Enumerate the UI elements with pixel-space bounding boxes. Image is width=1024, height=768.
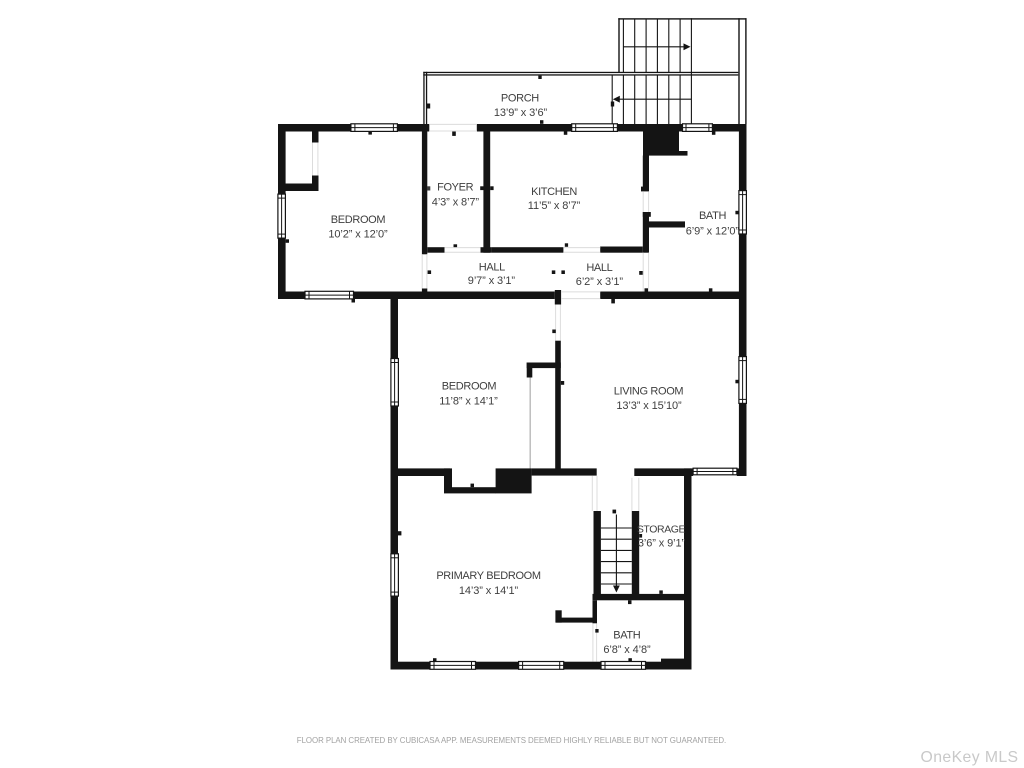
svg-text:3’6” x 9’1”: 3’6” x 9’1”: [638, 538, 686, 550]
svg-text:BATH: BATH: [613, 630, 641, 642]
svg-text:PORCH: PORCH: [501, 93, 539, 105]
svg-text:BEDROOM: BEDROOM: [331, 214, 386, 226]
svg-text:FOYER: FOYER: [437, 182, 474, 194]
svg-text:KITCHEN: KITCHEN: [531, 186, 577, 198]
svg-text:6’9” x 12’0”: 6’9” x 12’0”: [686, 226, 740, 238]
svg-text:14’3” x 14’1”: 14’3” x 14’1”: [459, 585, 519, 597]
svg-text:4’3” x 8’7”: 4’3” x 8’7”: [432, 197, 480, 209]
svg-text:13’9” x 3’6”: 13’9” x 3’6”: [494, 107, 548, 119]
svg-text:11’5” x 8’7”: 11’5” x 8’7”: [528, 200, 581, 212]
svg-text:HALL: HALL: [479, 262, 505, 274]
svg-text:11’8” x 14’1”: 11’8” x 14’1”: [439, 396, 498, 408]
svg-text:6’8” x 4’8”: 6’8” x 4’8”: [603, 644, 651, 656]
svg-text:10’2” x 12’0”: 10’2” x 12’0”: [328, 229, 388, 241]
svg-text:FLOOR PLAN CREATED BY CUBICASA: FLOOR PLAN CREATED BY CUBICASA APP. MEAS…: [297, 736, 726, 745]
svg-text:HALL: HALL: [586, 262, 612, 274]
svg-text:13’3” x 15’10”: 13’3” x 15’10”: [616, 400, 682, 412]
svg-text:6’2” x 3’1”: 6’2” x 3’1”: [576, 276, 624, 288]
svg-text:9’7” x 3’1”: 9’7” x 3’1”: [468, 275, 516, 287]
svg-text:BEDROOM: BEDROOM: [442, 381, 497, 393]
svg-text:PRIMARY BEDROOM: PRIMARY BEDROOM: [436, 570, 541, 582]
svg-text:BATH: BATH: [699, 210, 727, 222]
svg-text:LIVING ROOM: LIVING ROOM: [614, 386, 684, 398]
svg-text:STORAGE: STORAGE: [637, 524, 686, 536]
svg-text:OneKey MLS: OneKey MLS: [921, 749, 1019, 766]
